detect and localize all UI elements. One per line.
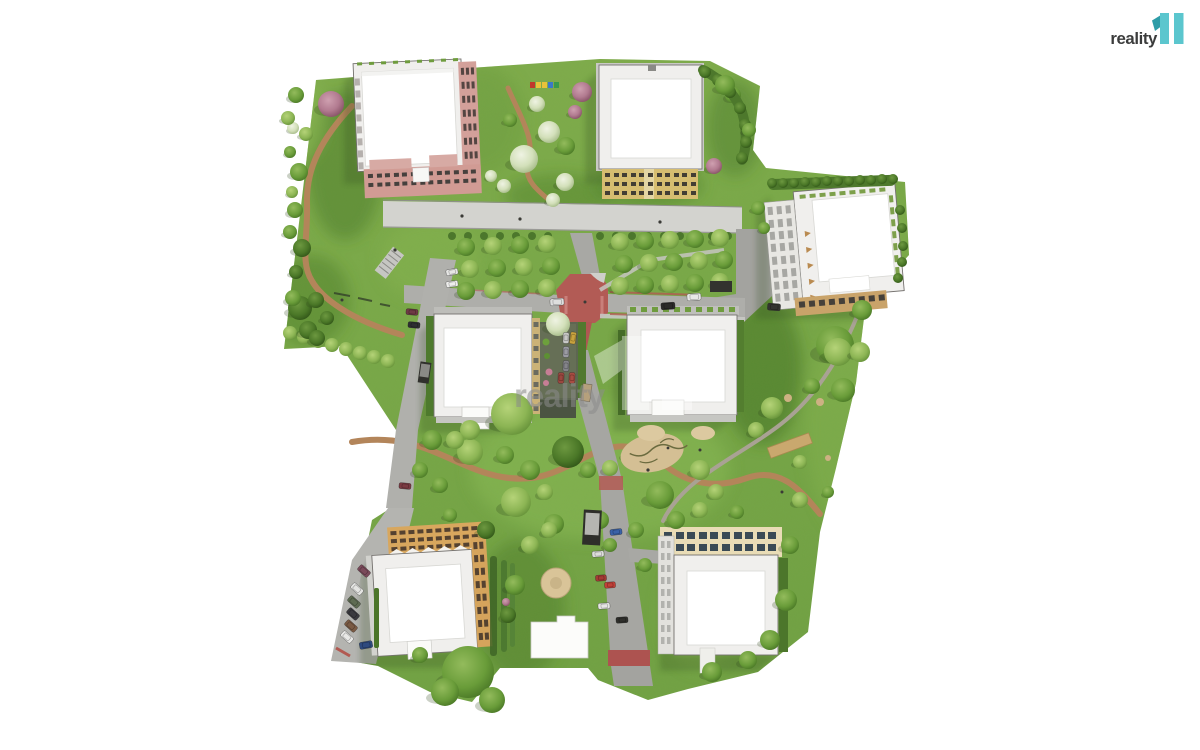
svg-text:reality: reality xyxy=(514,377,606,414)
svg-text:reality: reality xyxy=(1110,29,1158,48)
